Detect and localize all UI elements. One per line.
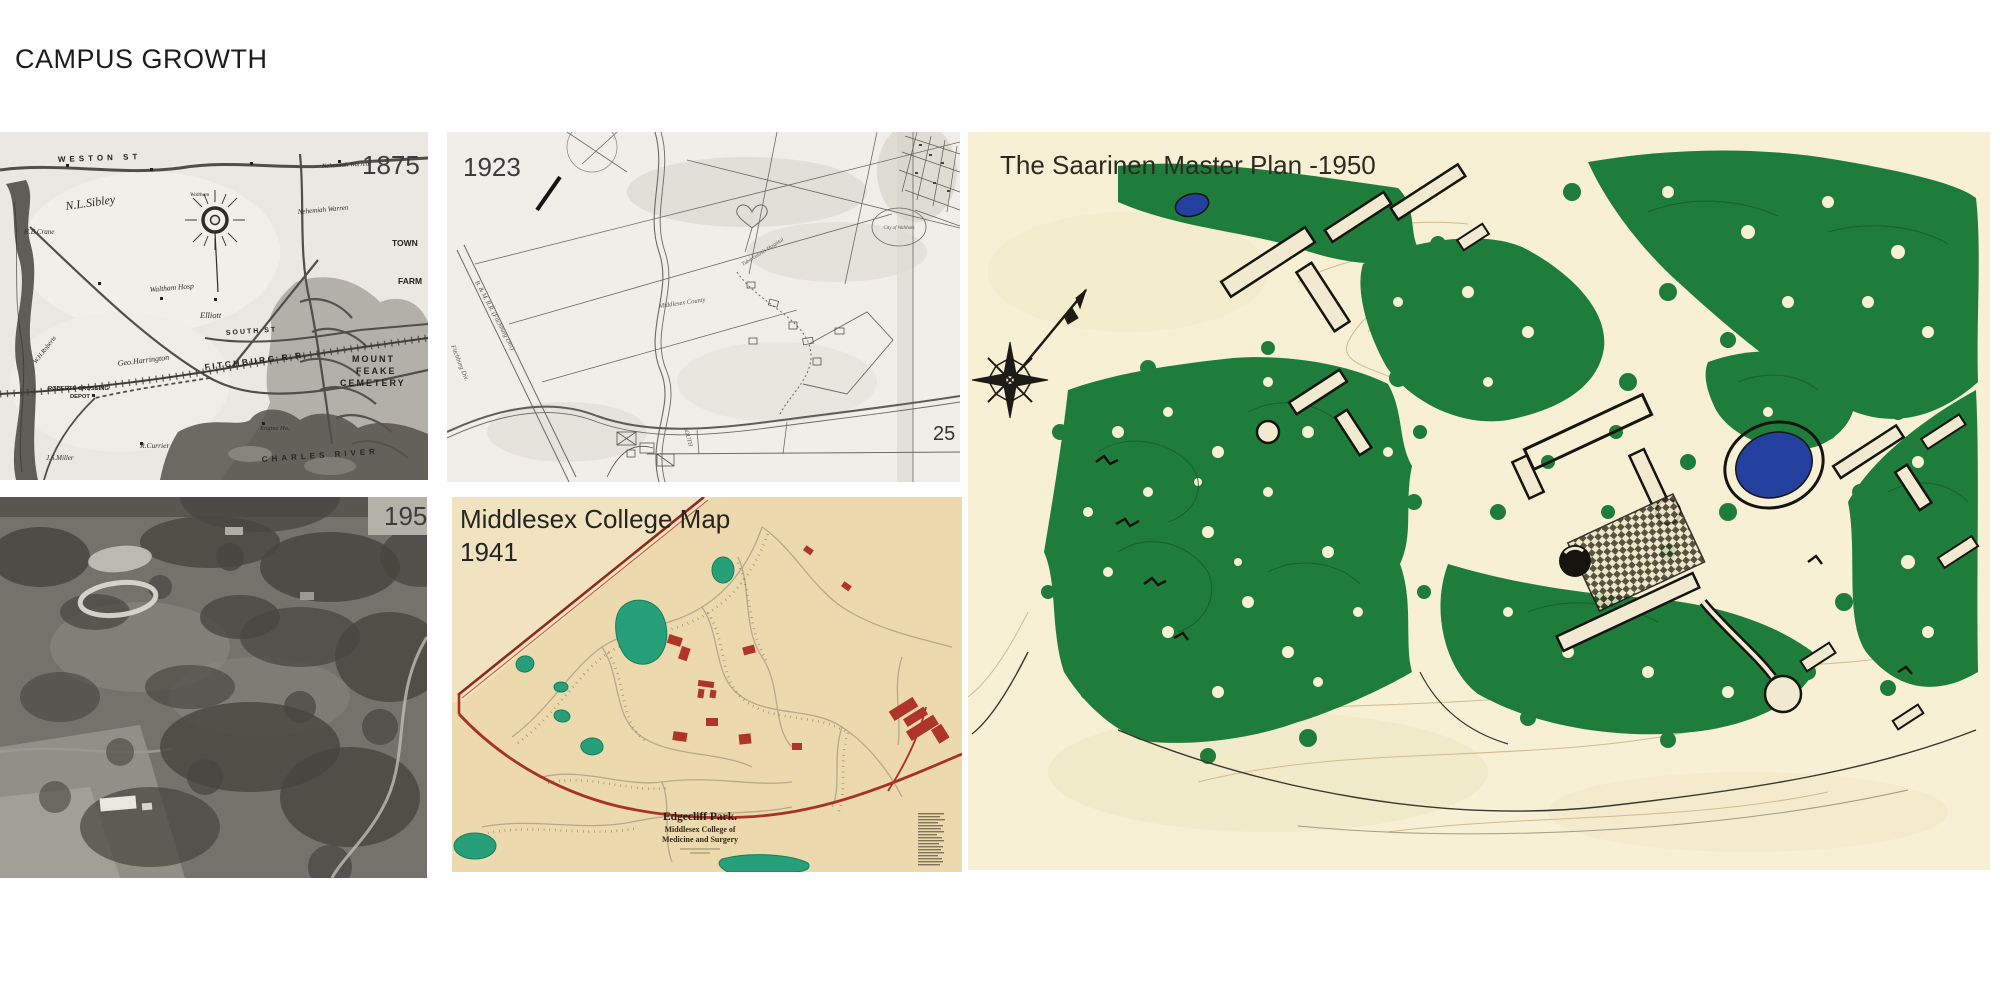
label-feake: FEAKE (356, 366, 397, 376)
label-engine: Engine Ho. (259, 425, 290, 432)
sheet-number: 25 (933, 423, 955, 445)
map-1875-image: WESTON ST N.L.Sibley H.B.Crane Nehemiah … (0, 132, 428, 480)
map-1875-panel: WESTON ST N.L.Sibley H.B.Crane Nehemiah … (0, 132, 428, 480)
caption-line-2: Middlesex College of (664, 825, 735, 834)
photo-1950-panel: 1950 (0, 497, 427, 878)
label-cemetery: CEMETERY (340, 378, 406, 388)
year-label-1875: 1875 (362, 150, 420, 180)
map-1923-image: B. & M. R.R. (Fitchburg Div.) Fitchburg … (447, 132, 960, 482)
map-1923-panel: B. & M. R.R. (Fitchburg Div.) Fitchburg … (447, 132, 960, 482)
map-1941-panel: Edgecliff Park. Middlesex College of Med… (452, 497, 962, 872)
label-farm: FARM (398, 276, 422, 286)
saarinen-plan-panel: The Saarinen Master Plan -1950 (968, 132, 1990, 870)
label-depot: DEPOT (70, 394, 90, 400)
label-waltham: Waltham (190, 192, 209, 198)
map-1941-title: Middlesex College Map 1941 (460, 503, 730, 568)
label-town: TOWN (392, 238, 418, 248)
label-mount: MOUNT (352, 354, 395, 364)
year-label-1923: 1923 (463, 152, 521, 182)
caption-edgecliff-park: Edgecliff Park. (663, 811, 737, 823)
page-title: CAMPUS GROWTH (15, 44, 268, 75)
year-label-1950: 1950 (384, 501, 427, 531)
map-1941-title-line2: 1941 (460, 536, 730, 569)
label-currier: R.Currier (139, 441, 169, 450)
caption-line-3: Medicine and Surgery (662, 835, 738, 844)
saarinen-dome-building (1559, 545, 1591, 577)
photo-1950-image: 1950 (0, 497, 427, 878)
label-city-of-waltham: City of Waltham (883, 226, 915, 231)
label-elliott: Elliott (199, 310, 222, 320)
map-1941-title-line1: Middlesex College Map (460, 503, 730, 536)
label-crossing: ROBERTS CROSSING (48, 386, 109, 392)
saarinen-plan-image: The Saarinen Master Plan -1950 (968, 132, 1990, 870)
slide-campus-growth: CAMPUS GROWTH (0, 0, 2000, 1000)
label-crane: H.B.Crane (23, 228, 54, 236)
saarinen-title: The Saarinen Master Plan -1950 (1000, 150, 1376, 180)
label-miller: J.S.Miller (46, 454, 74, 462)
